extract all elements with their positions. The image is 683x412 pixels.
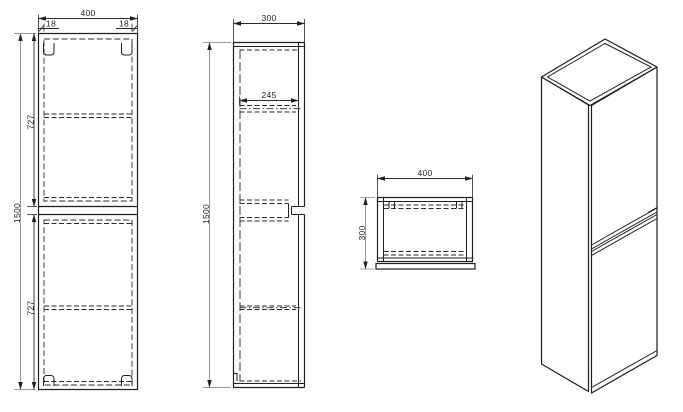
dim-label: 300 (261, 13, 276, 23)
hanger-bracket (122, 43, 133, 55)
front-lower-door (44, 220, 132, 385)
dim-label: 1500 (201, 204, 211, 224)
front-view: 400 18 18 1500 727 (12, 8, 138, 390)
front-upper-door (44, 39, 132, 201)
side-view: 300 245 1500 (201, 13, 305, 388)
dim-label: 245 (261, 90, 276, 100)
door-front-strip (376, 264, 475, 270)
dim-front-height: 1500 (12, 34, 36, 390)
cabinet-technical-drawing: 400 18 18 1500 727 (0, 0, 683, 412)
hanger-bracket (44, 43, 55, 55)
dim-top-width: 400 (378, 168, 473, 198)
dim-label: 18 (46, 19, 56, 29)
dim-front-upper-section: 727 (26, 34, 38, 207)
dim-top-depth: 300 (357, 198, 375, 270)
isometric-view (542, 39, 658, 393)
top-view: 400 300 (357, 168, 475, 269)
dim-side-height: 1500 (201, 43, 231, 388)
dim-label: 1500 (12, 203, 22, 223)
dim-label: 400 (417, 168, 432, 178)
dim-label: 400 (80, 8, 95, 18)
dim-side-shelf-depth: 245 (240, 90, 299, 105)
drawing-sheet: 400 18 18 1500 727 (0, 0, 683, 412)
front-carcass-outline (39, 34, 138, 390)
dim-label: 300 (357, 225, 367, 240)
dim-label: 18 (119, 19, 129, 29)
dim-side-depth: 300 (234, 13, 305, 43)
dim-front-edge-right: 18 (116, 19, 138, 32)
dim-label: 727 (26, 300, 36, 315)
dim-front-lower-section: 727 (26, 215, 38, 390)
hanger-bracket (44, 376, 55, 387)
hanger-bracket (122, 376, 133, 387)
dim-front-edge-left: 18 (39, 19, 60, 32)
iso-left-face (542, 77, 589, 392)
dim-label: 727 (26, 114, 36, 129)
